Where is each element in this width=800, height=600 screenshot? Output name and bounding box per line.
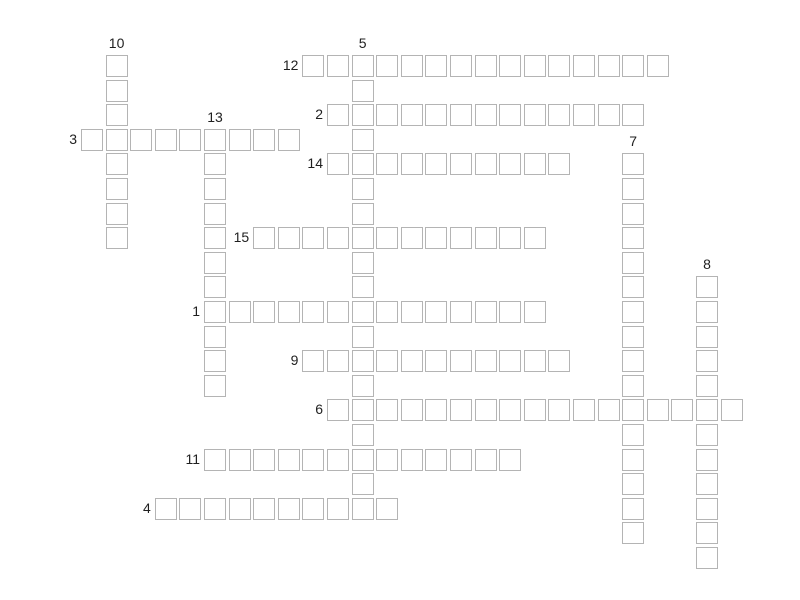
crossword-cell-11-10[interactable] [450,449,472,471]
crossword-cell-12-1[interactable] [327,55,349,77]
crossword-cell-1-6[interactable] [352,301,374,323]
crossword-cell-2-8[interactable] [524,104,546,126]
clue-number-4: 4 [119,501,151,516]
crossword-cell-3-2[interactable] [130,129,152,151]
crossword-cell-6-8[interactable] [524,399,546,421]
crossword-cell-7-11[interactable] [622,424,644,446]
crossword-cell-11-7[interactable] [376,449,398,471]
crossword-cell-14-4[interactable] [425,153,447,175]
crossword-cell-8-8[interactable] [696,473,718,495]
crossword-cell-2-5[interactable] [450,104,472,126]
crossword-cell-6-0[interactable] [327,399,349,421]
crossword-cell-6-12[interactable] [622,399,644,421]
crossword-cell-2-10[interactable] [573,104,595,126]
crossword-cell-9-7[interactable] [475,350,497,372]
crossword-cell-8-6[interactable] [696,424,718,446]
crossword-cell-15-8[interactable] [450,227,472,249]
crossword-cell-1-11[interactable] [475,301,497,323]
crossword-cell-12-13[interactable] [622,55,644,77]
crossword-cell-2-6[interactable] [475,104,497,126]
clue-number-11: 11 [168,452,200,467]
crossword-cell-13-5[interactable] [204,252,226,274]
crossword-cell-1-9[interactable] [425,301,447,323]
crossword-cell-6-3[interactable] [401,399,423,421]
crossword-cell-12-6[interactable] [450,55,472,77]
crossword-cell-4-5[interactable] [278,498,300,520]
crossword-cell-7-9[interactable] [622,375,644,397]
crossword-cell-4-9[interactable] [376,498,398,520]
crossword-cell-6-5[interactable] [450,399,472,421]
crossword-cell-12-10[interactable] [548,55,570,77]
crossword-cell-10-7[interactable] [106,227,128,249]
crossword-cell-3-7[interactable] [253,129,275,151]
crossword-cell-14-3[interactable] [401,153,423,175]
crossword-cell-4-8[interactable] [352,498,374,520]
crossword-cell-1-1[interactable] [229,301,251,323]
crossword-cell-9-0[interactable] [302,350,324,372]
crossword-cell-4-6[interactable] [302,498,324,520]
crossword-cell-13-1[interactable] [204,153,226,175]
crossword-cell-5-3[interactable] [352,129,374,151]
clue-number-2: 2 [291,107,323,122]
crossword-cell-6-10[interactable] [573,399,595,421]
crossword-cell-14-8[interactable] [524,153,546,175]
crossword-cell-4-7[interactable] [327,498,349,520]
crossword-cell-15-7[interactable] [425,227,447,249]
crossword-cell-12-11[interactable] [573,55,595,77]
crossword-cell-13-2[interactable] [204,178,226,200]
crossword-cell-1-3[interactable] [278,301,300,323]
crossword-cell-7-15[interactable] [622,522,644,544]
crossword-cell-6-14[interactable] [671,399,693,421]
crossword-cell-5-5[interactable] [352,178,374,200]
crossword-cell-13-9[interactable] [204,350,226,372]
crossword-cell-7-0[interactable] [622,153,644,175]
crossword-cell-4-3[interactable] [229,498,251,520]
crossword-cell-6-13[interactable] [647,399,669,421]
crossword-cell-1-10[interactable] [450,301,472,323]
crossword-cell-14-5[interactable] [450,153,472,175]
crossword-cell-6-11[interactable] [598,399,620,421]
crossword-cell-4-0[interactable] [155,498,177,520]
crossword-cell-7-13[interactable] [622,473,644,495]
crossword-cell-7-3[interactable] [622,227,644,249]
crossword-cell-9-8[interactable] [499,350,521,372]
crossword-cell-7-12[interactable] [622,449,644,471]
crossword-cell-5-8[interactable] [352,252,374,274]
crossword-cell-9-10[interactable] [548,350,570,372]
crossword-cell-15-3[interactable] [327,227,349,249]
crossword-cell-12-14[interactable] [647,55,669,77]
crossword-cell-12-12[interactable] [598,55,620,77]
crossword-cell-14-6[interactable] [475,153,497,175]
crossword-cell-2-7[interactable] [499,104,521,126]
crossword-cell-8-1[interactable] [696,301,718,323]
crossword-cell-11-2[interactable] [253,449,275,471]
crossword-cell-14-1[interactable] [352,153,374,175]
crossword-cell-15-10[interactable] [499,227,521,249]
clue-number-1: 1 [168,304,200,319]
crossword-cell-15-0[interactable] [253,227,275,249]
crossword-cell-12-5[interactable] [425,55,447,77]
crossword-cell-12-9[interactable] [524,55,546,77]
crossword-cell-12-8[interactable] [499,55,521,77]
crossword-cell-8-10[interactable] [696,522,718,544]
crossword-cell-8-9[interactable] [696,498,718,520]
crossword-cell-7-6[interactable] [622,301,644,323]
crossword-cell-15-9[interactable] [475,227,497,249]
crossword-cell-14-2[interactable] [376,153,398,175]
crossword-cell-8-4[interactable] [696,375,718,397]
crossword-cell-11-6[interactable] [352,449,374,471]
crossword-cell-3-8[interactable] [278,129,300,151]
crossword-cell-7-4[interactable] [622,252,644,274]
crossword-cell-4-4[interactable] [253,498,275,520]
crossword-cell-15-6[interactable] [401,227,423,249]
crossword-cell-6-15[interactable] [696,399,718,421]
crossword-cell-3-4[interactable] [179,129,201,151]
crossword-board: 121052313147158196114 [0,0,800,600]
crossword-cell-8-0[interactable] [696,276,718,298]
crossword-cell-15-5[interactable] [376,227,398,249]
crossword-cell-9-6[interactable] [450,350,472,372]
crossword-cell-2-1[interactable] [352,104,374,126]
crossword-cell-15-4[interactable] [352,227,374,249]
crossword-cell-6-6[interactable] [475,399,497,421]
crossword-cell-4-1[interactable] [179,498,201,520]
crossword-cell-10-0[interactable] [106,55,128,77]
crossword-cell-2-9[interactable] [548,104,570,126]
clue-number-3: 3 [45,132,77,147]
crossword-cell-9-9[interactable] [524,350,546,372]
crossword-cell-7-2[interactable] [622,203,644,225]
crossword-cell-8-3[interactable] [696,350,718,372]
crossword-cell-9-3[interactable] [376,350,398,372]
crossword-cell-2-12[interactable] [622,104,644,126]
clue-number-5: 5 [347,36,379,51]
crossword-cell-2-0[interactable] [327,104,349,126]
crossword-cell-6-1[interactable] [352,399,374,421]
crossword-cell-6-7[interactable] [499,399,521,421]
clue-number-10: 10 [101,36,133,51]
crossword-cell-6-4[interactable] [425,399,447,421]
crossword-cell-7-1[interactable] [622,178,644,200]
crossword-cell-2-2[interactable] [376,104,398,126]
crossword-cell-11-11[interactable] [475,449,497,471]
crossword-cell-10-6[interactable] [106,203,128,225]
crossword-cell-13-6[interactable] [204,276,226,298]
crossword-cell-10-4[interactable] [106,153,128,175]
crossword-cell-11-8[interactable] [401,449,423,471]
crossword-cell-11-12[interactable] [499,449,521,471]
crossword-cell-3-1[interactable] [106,129,128,151]
crossword-cell-3-3[interactable] [155,129,177,151]
crossword-cell-2-4[interactable] [425,104,447,126]
crossword-cell-13-3[interactable] [204,203,226,225]
crossword-cell-15-2[interactable] [302,227,324,249]
crossword-cell-14-7[interactable] [499,153,521,175]
crossword-cell-12-3[interactable] [376,55,398,77]
crossword-cell-5-11[interactable] [352,326,374,348]
crossword-cell-1-13[interactable] [524,301,546,323]
crossword-cell-9-4[interactable] [401,350,423,372]
crossword-cell-5-15[interactable] [352,424,374,446]
clue-number-15: 15 [217,230,249,245]
crossword-cell-3-6[interactable] [229,129,251,151]
crossword-cell-6-9[interactable] [548,399,570,421]
crossword-cell-15-11[interactable] [524,227,546,249]
crossword-cell-11-5[interactable] [327,449,349,471]
crossword-cell-5-1[interactable] [352,80,374,102]
crossword-cell-5-9[interactable] [352,276,374,298]
crossword-cell-1-5[interactable] [327,301,349,323]
crossword-cell-11-3[interactable] [278,449,300,471]
crossword-cell-8-11[interactable] [696,547,718,569]
crossword-cell-1-2[interactable] [253,301,275,323]
clue-number-7: 7 [617,134,649,149]
crossword-cell-6-16[interactable] [721,399,743,421]
crossword-cell-3-0[interactable] [81,129,103,151]
crossword-cell-7-14[interactable] [622,498,644,520]
clue-number-9: 9 [266,353,298,368]
crossword-cell-15-1[interactable] [278,227,300,249]
crossword-cell-7-7[interactable] [622,326,644,348]
crossword-cell-1-7[interactable] [376,301,398,323]
crossword-cell-8-2[interactable] [696,326,718,348]
crossword-cell-12-0[interactable] [302,55,324,77]
crossword-cell-6-2[interactable] [376,399,398,421]
crossword-cell-10-5[interactable] [106,178,128,200]
clue-number-13: 13 [199,110,231,125]
crossword-cell-11-0[interactable] [204,449,226,471]
crossword-cell-11-1[interactable] [229,449,251,471]
crossword-cell-11-4[interactable] [302,449,324,471]
crossword-cell-2-3[interactable] [401,104,423,126]
crossword-cell-13-10[interactable] [204,375,226,397]
crossword-cell-1-8[interactable] [401,301,423,323]
clue-number-12: 12 [266,58,298,73]
crossword-cell-9-2[interactable] [352,350,374,372]
crossword-cell-1-4[interactable] [302,301,324,323]
crossword-cell-2-11[interactable] [598,104,620,126]
crossword-cell-1-12[interactable] [499,301,521,323]
crossword-cell-14-9[interactable] [548,153,570,175]
crossword-cell-10-1[interactable] [106,80,128,102]
crossword-cell-13-8[interactable] [204,326,226,348]
crossword-cell-11-9[interactable] [425,449,447,471]
crossword-cell-7-5[interactable] [622,276,644,298]
crossword-cell-5-13[interactable] [352,375,374,397]
crossword-cell-12-4[interactable] [401,55,423,77]
crossword-cell-12-7[interactable] [475,55,497,77]
crossword-cell-14-0[interactable] [327,153,349,175]
clue-number-14: 14 [291,156,323,171]
crossword-cell-5-6[interactable] [352,203,374,225]
crossword-cell-9-5[interactable] [425,350,447,372]
crossword-cell-4-2[interactable] [204,498,226,520]
crossword-cell-9-1[interactable] [327,350,349,372]
crossword-cell-7-8[interactable] [622,350,644,372]
crossword-cell-5-17[interactable] [352,473,374,495]
clue-number-6: 6 [291,402,323,417]
crossword-cell-13-0[interactable] [204,129,226,151]
crossword-cell-8-7[interactable] [696,449,718,471]
clue-number-8: 8 [691,257,723,272]
crossword-cell-5-0[interactable] [352,55,374,77]
crossword-cell-10-2[interactable] [106,104,128,126]
crossword-cell-1-0[interactable] [204,301,226,323]
